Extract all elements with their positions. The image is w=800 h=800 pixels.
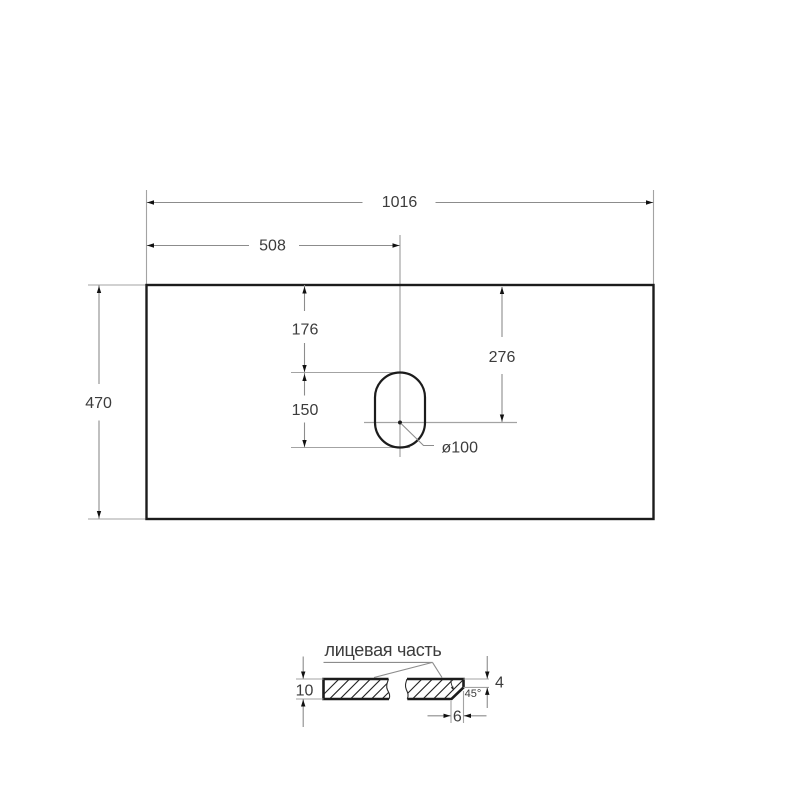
svg-text:1016: 1016 (382, 194, 418, 211)
svg-text:176: 176 (292, 321, 319, 338)
svg-text:150: 150 (292, 402, 319, 419)
svg-text:6: 6 (453, 709, 462, 726)
svg-text:470: 470 (85, 395, 112, 412)
svg-text:45°: 45° (465, 688, 482, 700)
svg-text:10: 10 (296, 683, 314, 700)
svg-text:276: 276 (489, 349, 516, 366)
svg-text:4: 4 (495, 675, 504, 692)
svg-text:ø100: ø100 (442, 440, 479, 457)
svg-text:508: 508 (259, 238, 286, 255)
svg-text:лицевая часть: лицевая часть (325, 640, 442, 660)
